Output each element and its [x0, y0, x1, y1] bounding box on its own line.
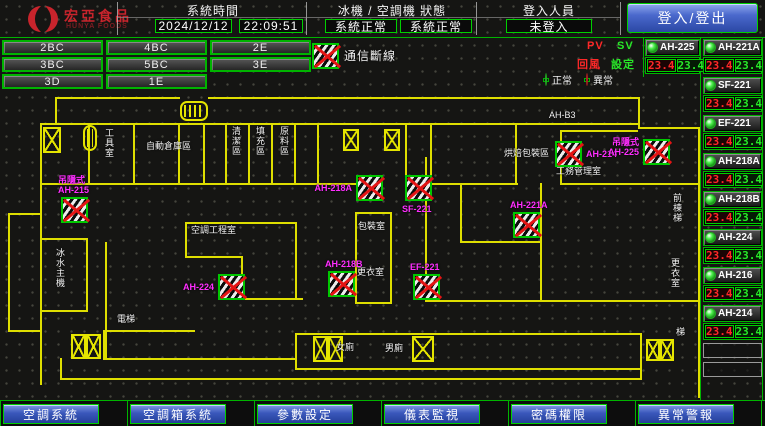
- sv-header-label: SV: [617, 40, 634, 52]
- status-led: [705, 270, 716, 281]
- unit-values-EF-221: 23.423.4: [703, 133, 762, 150]
- comm-fail-legend-label: 通信斷線: [344, 49, 396, 63]
- device-label: 吊隱式 AH-225: [601, 137, 639, 157]
- unit-name: AH-224: [718, 232, 752, 243]
- footer-divider: [381, 401, 382, 426]
- room-label: 工具室: [104, 128, 114, 158]
- chiller-status-value: 系統正常: [325, 19, 397, 33]
- footer-divider: [127, 401, 128, 426]
- wall: [103, 330, 105, 360]
- room-label: 清潔區: [231, 126, 241, 156]
- room-label: 男廁: [385, 343, 403, 353]
- wall: [295, 333, 642, 335]
- wall: [133, 123, 135, 185]
- pv-value: 23.4: [705, 173, 734, 186]
- unit-values-AH-218B: 23.423.4: [703, 209, 762, 226]
- sv-column-label: 設定: [611, 56, 635, 72]
- device-marker-SF-221[interactable]: [405, 175, 432, 201]
- unit-name: SF-221: [718, 80, 751, 91]
- unit-name: EF-221: [718, 118, 751, 129]
- wall: [460, 241, 542, 243]
- wall: [203, 123, 205, 185]
- device-label: AH-221A: [510, 200, 548, 210]
- footer-button-4[interactable]: 儀表監視: [384, 404, 480, 424]
- floor-button-2E[interactable]: 2E: [210, 40, 311, 55]
- stairs-symbol: [343, 129, 359, 151]
- elevator-symbol: [180, 101, 208, 121]
- wall: [355, 212, 392, 214]
- unit-button-EF-221[interactable]: EF-221: [703, 115, 762, 132]
- footer-divider: [761, 401, 762, 426]
- wall: [295, 368, 642, 370]
- wall: [355, 212, 357, 304]
- unit-values-AH-225: 23.423.4: [645, 57, 700, 74]
- device-label: SF-221: [402, 204, 432, 214]
- sv-value: 23.4: [735, 325, 764, 338]
- wall: [8, 330, 42, 332]
- floor-button-2BC[interactable]: 2BC: [2, 40, 103, 55]
- wall: [241, 298, 303, 300]
- stairs-x-icon: [660, 339, 674, 361]
- unit-name: AH-214: [718, 308, 752, 319]
- device-marker-AH-218A[interactable]: [356, 175, 383, 201]
- room-label: 冰水主機: [55, 248, 65, 288]
- wall: [390, 212, 392, 304]
- pv-value: 23.4: [647, 59, 676, 72]
- device-marker-AH-218B[interactable]: [328, 271, 355, 297]
- room-label: 空調工程室: [191, 225, 236, 235]
- floor-button-5BC[interactable]: 5BC: [106, 57, 207, 72]
- unit-button-AH-221A[interactable]: AH-221A: [703, 39, 762, 56]
- wall: [271, 123, 273, 185]
- wall: [430, 183, 518, 185]
- wall: [317, 123, 319, 185]
- room-label: 前棟梯: [672, 193, 682, 223]
- panel-divider: [700, 38, 701, 400]
- sv-value: 23.4: [677, 59, 706, 72]
- unit-name: AH-225: [660, 42, 694, 53]
- unit-values-AH-216: 23.423.4: [703, 285, 762, 302]
- hunya-logo-icon: [27, 3, 59, 35]
- stairs-x-icon: [646, 339, 660, 361]
- unit-name: AH-216: [718, 270, 752, 281]
- footer-button-3[interactable]: 參數設定: [257, 404, 353, 424]
- status-led: [705, 42, 716, 53]
- unit-values-SF-221: 23.423.4: [703, 95, 762, 112]
- machine-status-label: 冰機 / 空調機 狀態: [308, 2, 476, 19]
- device-label: AH-224: [176, 282, 214, 292]
- pv-value: 23.4: [705, 135, 734, 148]
- pv-value: 23.4: [705, 249, 734, 262]
- pv-column-label: 回風: [577, 56, 601, 72]
- status-led: [705, 156, 716, 167]
- wall: [460, 183, 462, 243]
- wall: [103, 358, 295, 360]
- device-label: 吊隱式 AH-215: [58, 175, 89, 195]
- stairs-x-icon: [86, 334, 101, 359]
- sv-value: 23.4: [735, 59, 764, 72]
- footer-button-2[interactable]: 空調箱系統: [130, 404, 226, 424]
- wall: [208, 97, 640, 99]
- footer-button-6[interactable]: 異常警報: [638, 404, 734, 424]
- sv-value: 23.4: [735, 135, 764, 148]
- wall: [40, 123, 640, 125]
- unit-button-AH-216[interactable]: AH-216: [703, 267, 762, 284]
- floor-button-1E[interactable]: 1E: [106, 74, 207, 89]
- empty-unit-slot: [703, 362, 762, 377]
- pv-value: 23.4: [705, 59, 734, 72]
- footer-divider: [508, 401, 509, 426]
- wall: [560, 130, 638, 132]
- unit-button-SF-221[interactable]: SF-221: [703, 77, 762, 94]
- room-label: 更衣室: [670, 258, 680, 288]
- normal-legend: 正常: [543, 72, 572, 87]
- wall: [55, 97, 180, 99]
- unit-values-AH-221A: 23.423.4: [703, 57, 762, 74]
- status-led: [705, 118, 716, 129]
- abnormal-legend: 異常: [584, 72, 613, 87]
- stairs-symbol: [43, 127, 61, 153]
- header-divider: [117, 2, 118, 35]
- room-label: 工務管理室: [556, 166, 601, 176]
- elevator-symbol: [83, 125, 97, 151]
- stairs-symbol: [412, 336, 434, 362]
- wall: [178, 123, 180, 185]
- room-label: 女廁: [336, 342, 354, 352]
- stairs-x-icon: [384, 129, 400, 151]
- wall: [560, 183, 700, 185]
- floor-button-3BC[interactable]: 3BC: [2, 57, 103, 72]
- brand-subtitle: HUNYA FOODS: [66, 23, 128, 30]
- room-label: 電梯: [117, 314, 135, 324]
- sv-value: 23.4: [735, 287, 764, 300]
- wall: [40, 123, 42, 385]
- status-led: [705, 232, 716, 243]
- device-label: EF-221: [410, 262, 440, 272]
- device-marker-AH-214[interactable]: [555, 141, 582, 167]
- stairs-x-icon: [71, 334, 86, 359]
- login-user-value: 未登入: [506, 19, 592, 33]
- wall: [42, 310, 88, 312]
- header-divider: [620, 2, 621, 35]
- wall: [86, 238, 88, 312]
- floor-button-4BC[interactable]: 4BC: [106, 40, 207, 55]
- system-time-value: 22:09:51: [239, 19, 303, 33]
- stairs-x-icon: [43, 127, 61, 153]
- wall: [8, 213, 10, 332]
- floor-button-3D[interactable]: 3D: [2, 74, 103, 89]
- unit-button-AH-218A[interactable]: AH-218A: [703, 153, 762, 170]
- wall: [105, 242, 107, 360]
- pv-value: 23.4: [705, 211, 734, 224]
- device-marker-AH-221A[interactable]: [513, 212, 540, 238]
- device-marker-AH-215[interactable]: [61, 197, 88, 223]
- hmi-screen: 工具室自動倉庫區清潔區填充區原料區AH-B3烘焙包裝區工務管理室空調工程室包裝室…: [0, 0, 765, 426]
- footer-divider: [635, 401, 636, 426]
- footer-button-1[interactable]: 空調系統: [3, 404, 99, 424]
- wall: [355, 302, 392, 304]
- wall: [185, 222, 297, 224]
- stairs-x-icon: [343, 129, 359, 151]
- wall: [185, 222, 187, 258]
- header-divider: [306, 2, 307, 35]
- wall: [8, 213, 42, 215]
- wall: [640, 368, 642, 380]
- wall: [295, 333, 297, 370]
- room-label: 梯: [676, 327, 685, 337]
- sv-value: 23.4: [735, 173, 764, 186]
- empty-unit-slot: [703, 343, 762, 358]
- comm-fail-legend-icon: [312, 43, 339, 69]
- wall: [640, 333, 642, 370]
- wall: [638, 127, 700, 129]
- wall: [294, 123, 296, 185]
- stairs-symbol: [384, 129, 400, 151]
- pv-value: 23.4: [705, 97, 734, 110]
- stairs-x-icon: [412, 336, 434, 362]
- pv-value: 23.4: [705, 325, 734, 338]
- wall: [60, 378, 640, 380]
- device-marker-AH-224[interactable]: [218, 274, 245, 300]
- wall: [185, 256, 243, 258]
- device-label: AH-218B: [325, 259, 363, 269]
- wall: [225, 123, 227, 185]
- system-time-label: 系統時間: [120, 2, 306, 19]
- wall: [295, 222, 297, 300]
- header-divider: [476, 2, 477, 35]
- room-label: 原料區: [279, 126, 289, 156]
- status-led: [705, 80, 716, 91]
- unit-values-AH-224: 23.423.4: [703, 247, 762, 264]
- abnormal-legend-label: 異常: [593, 72, 613, 87]
- normal-led-icon: [543, 78, 549, 82]
- pv-value: 23.4: [705, 287, 734, 300]
- login-logout-button[interactable]: 登入/登出: [627, 3, 758, 33]
- room-label: AH-B3: [549, 110, 576, 120]
- stairs-x-icon: [313, 336, 328, 362]
- wall: [60, 358, 62, 380]
- room-label: 自動倉庫區: [146, 141, 191, 151]
- footer-divider: [0, 401, 1, 426]
- wall: [55, 97, 57, 125]
- room-label: 烘焙包裝區: [504, 148, 549, 158]
- unit-button-AH-214[interactable]: AH-214: [703, 305, 762, 322]
- unit-name: AH-218B: [718, 194, 760, 205]
- wall: [425, 300, 698, 302]
- panel-divider: [643, 38, 644, 77]
- normal-legend-label: 正常: [552, 72, 572, 87]
- unit-values-AH-214: 23.423.4: [703, 323, 762, 340]
- wall: [42, 238, 88, 240]
- status-led: [647, 42, 658, 53]
- unit-name: AH-221A: [718, 42, 760, 53]
- stairs-symbol: [71, 334, 101, 359]
- unit-button-AH-225[interactable]: AH-225: [645, 39, 700, 56]
- room-label: 包裝室: [358, 221, 385, 231]
- system-date-value: 2024/12/12: [155, 19, 232, 33]
- footer-divider: [254, 401, 255, 426]
- status-led: [705, 194, 716, 205]
- sv-value: 23.4: [735, 211, 764, 224]
- floor-button-3E[interactable]: 3E: [210, 57, 311, 72]
- login-label: 登入人員: [478, 2, 620, 19]
- room-label: 填充區: [255, 126, 265, 156]
- header-bar: 宏亞食品 HUNYA FOODS 系統時間 2024/12/12 22:09:5…: [0, 0, 765, 38]
- device-label: AH-218A: [314, 183, 352, 193]
- unit-button-AH-224[interactable]: AH-224: [703, 229, 762, 246]
- unit-button-AH-218B[interactable]: AH-218B: [703, 191, 762, 208]
- status-led: [705, 308, 716, 319]
- wall: [248, 123, 250, 185]
- stairs-symbol: [646, 339, 674, 361]
- footer-button-5[interactable]: 密碼權限: [511, 404, 607, 424]
- sv-value: 23.4: [735, 97, 764, 110]
- abnormal-led-icon: [584, 78, 590, 82]
- unit-values-AH-218A: 23.423.4: [703, 171, 762, 188]
- device-marker-EF-221[interactable]: [413, 274, 440, 300]
- pv-header-label: PV: [587, 40, 604, 52]
- unit-name: AH-218A: [718, 156, 760, 167]
- wall: [103, 330, 195, 332]
- ahu-status-value: 系統正常: [400, 19, 472, 33]
- footer-bar: 空調系統空調箱系統參數設定儀表監視密碼權限異常警報: [0, 400, 765, 426]
- sv-value: 23.4: [735, 249, 764, 262]
- device-marker-AH-225[interactable]: [643, 139, 670, 165]
